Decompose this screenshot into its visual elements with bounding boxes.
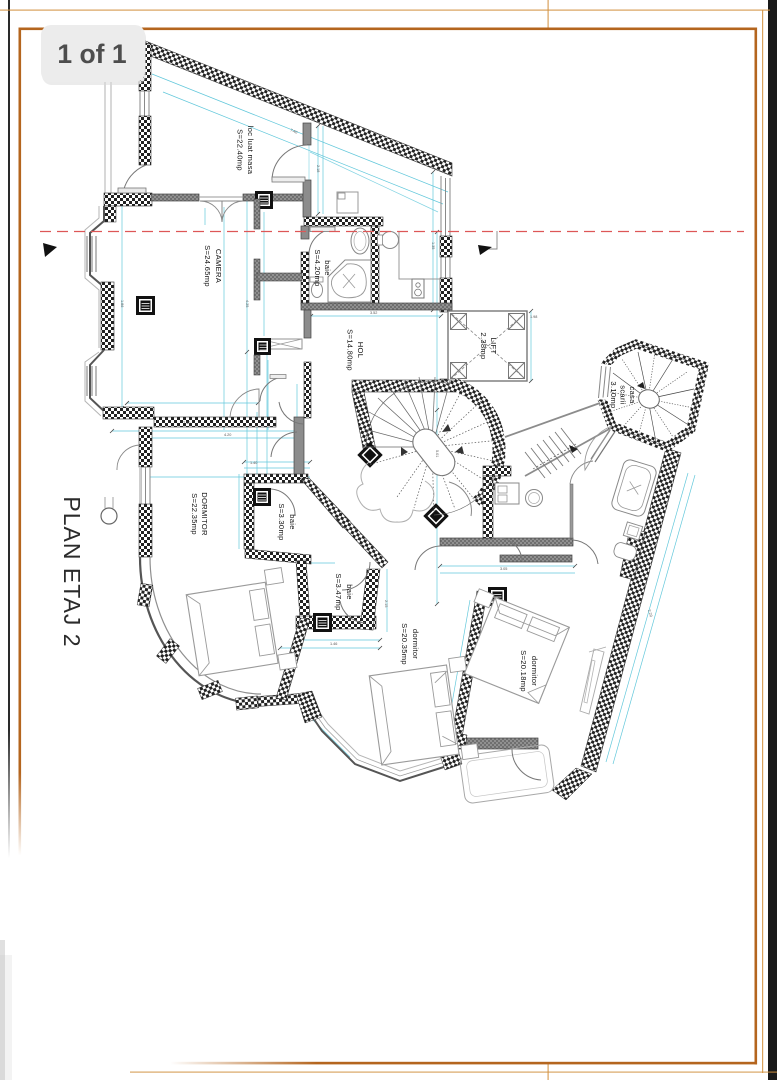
svg-text:3.52: 3.52 (370, 311, 377, 315)
svg-text:S=20.18mp: S=20.18mp (519, 650, 528, 692)
svg-text:4.25: 4.25 (245, 300, 249, 307)
svg-text:baie: baie (345, 584, 354, 600)
svg-text:4.20: 4.20 (224, 433, 231, 437)
svg-text:scarii: scarii (619, 385, 628, 405)
svg-text:CAMERA: CAMERA (214, 249, 223, 284)
svg-text:loc luat masa: loc luat masa (246, 126, 255, 175)
svg-text:S=22.35mp: S=22.35mp (190, 493, 199, 535)
svg-text:S=24.65mp: S=24.65mp (203, 245, 212, 287)
svg-text:casa: casa (628, 386, 637, 404)
svg-text:dormitor: dormitor (530, 656, 539, 686)
svg-text:S=3.47mp: S=3.47mp (334, 573, 343, 610)
svg-text:1.86: 1.86 (120, 300, 124, 307)
svg-text:1.98: 1.98 (530, 315, 537, 319)
svg-text:1.35: 1.35 (431, 242, 435, 249)
svg-text:S=20.35mp: S=20.35mp (400, 623, 409, 665)
svg-text:baie: baie (323, 260, 332, 276)
svg-text:S=14.80mp: S=14.80mp (346, 329, 355, 371)
svg-text:PLAN ETAJ 2: PLAN ETAJ 2 (59, 496, 85, 647)
svg-text:baie: baie (288, 514, 297, 530)
svg-text:S=4.20mp: S=4.20mp (313, 249, 322, 286)
svg-text:3.10mp: 3.10mp (609, 381, 618, 408)
svg-text:2.18: 2.18 (316, 165, 320, 172)
svg-text:1.46: 1.46 (330, 642, 337, 646)
svg-text:DORMITOR: DORMITOR (200, 492, 209, 536)
svg-text:2.15: 2.15 (384, 600, 388, 607)
svg-text:2.38mp: 2.38mp (479, 332, 488, 359)
svg-text:HOL: HOL (356, 342, 365, 359)
svg-text:S=22.40mp: S=22.40mp (236, 129, 245, 171)
svg-text:7.10: 7.10 (183, 421, 190, 425)
svg-text:1 of 1: 1 of 1 (57, 39, 126, 69)
svg-text:S=3.30mp: S=3.30mp (277, 503, 286, 540)
svg-text:LIFT: LIFT (489, 338, 498, 355)
svg-text:5.01: 5.01 (435, 450, 439, 457)
svg-text:1.40: 1.40 (250, 461, 257, 465)
svg-text:dormitor: dormitor (411, 629, 420, 659)
svg-text:3.05: 3.05 (500, 567, 507, 571)
